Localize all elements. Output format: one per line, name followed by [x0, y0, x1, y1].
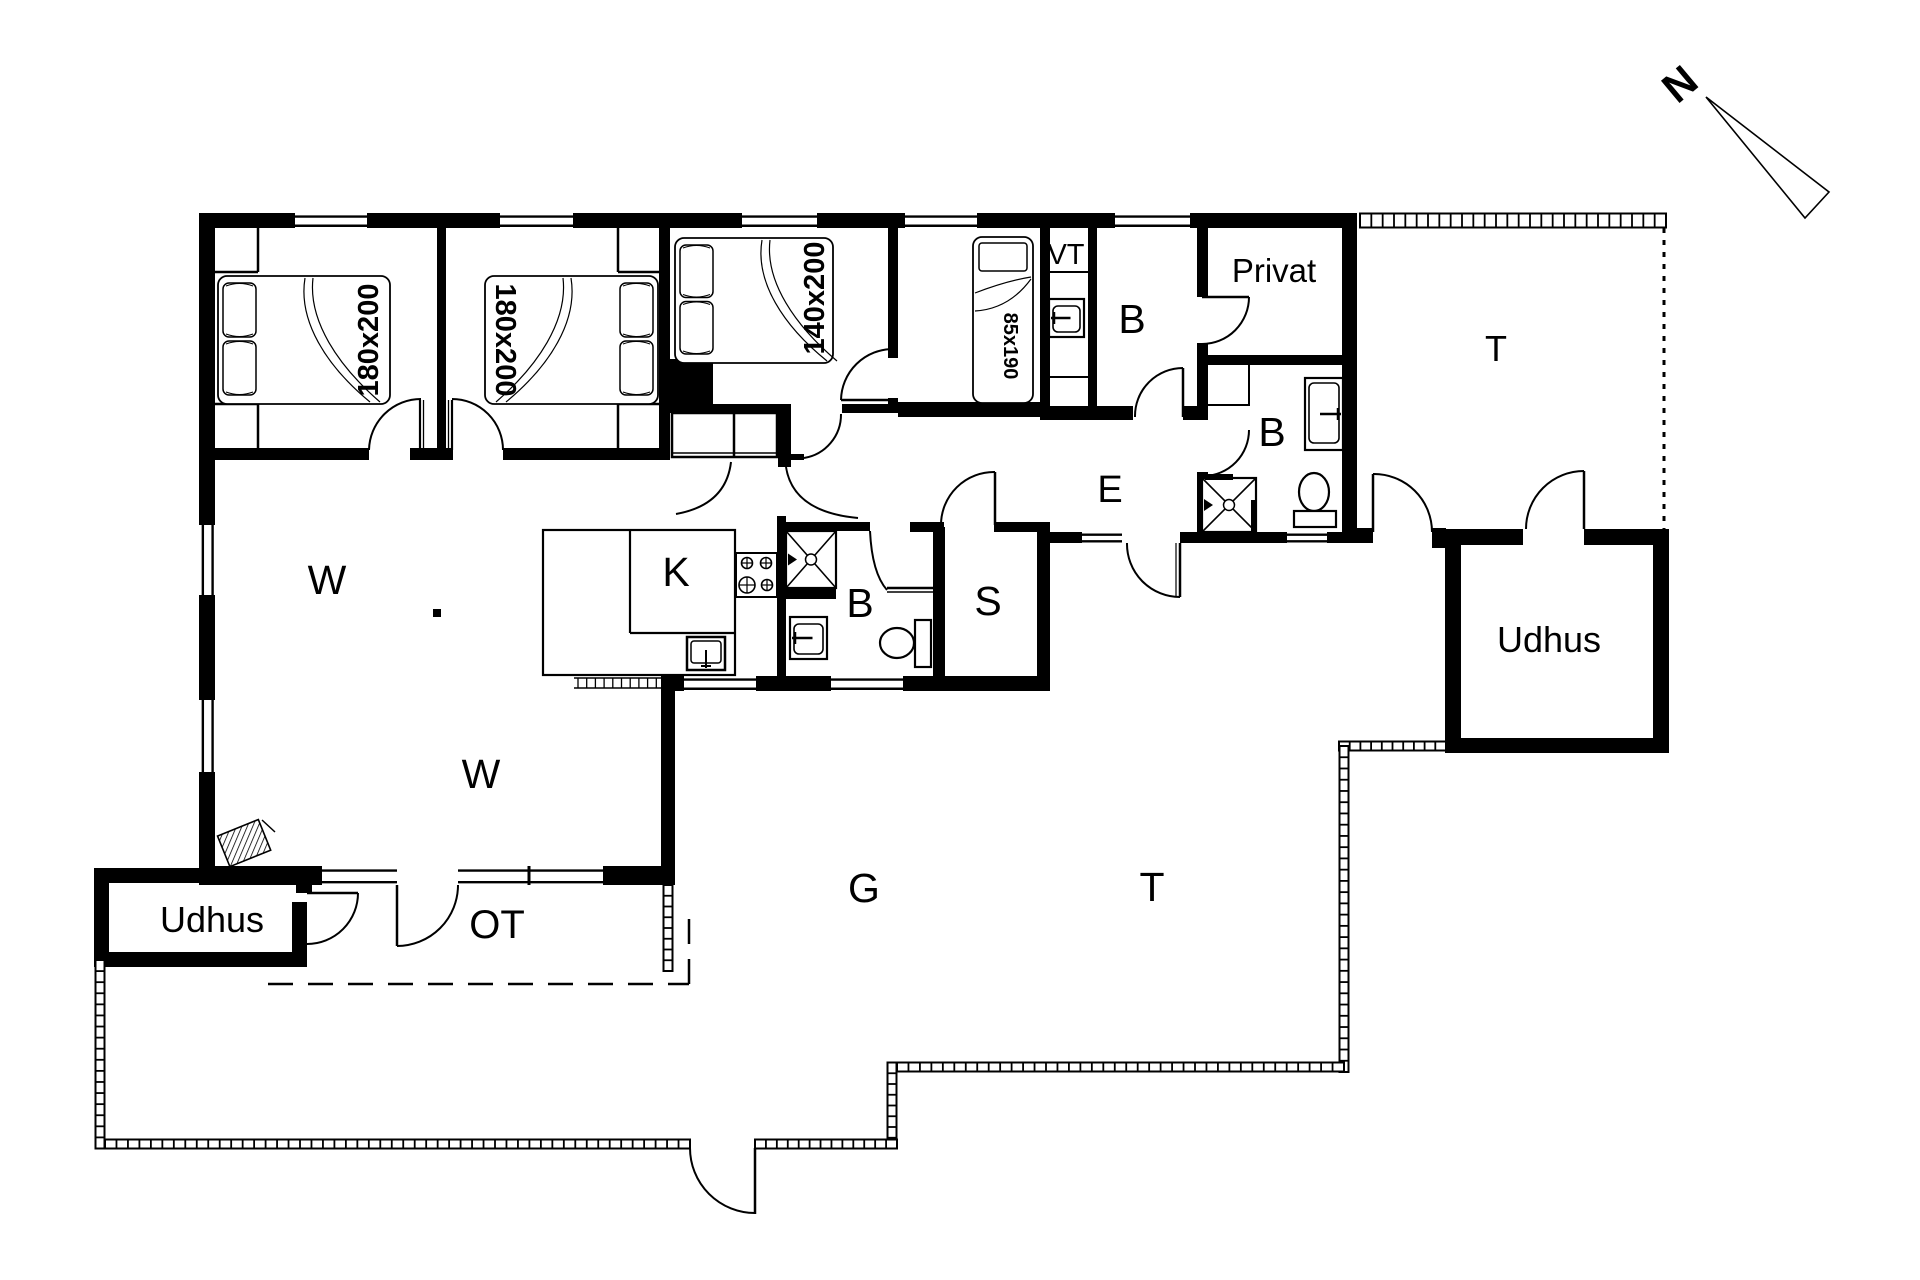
svg-text:W: W — [462, 751, 501, 797]
svg-text:B: B — [1118, 296, 1145, 342]
svg-text:S: S — [974, 578, 1001, 624]
svg-text:T: T — [1139, 864, 1164, 910]
svg-text:W: W — [308, 557, 347, 603]
svg-text:K: K — [662, 549, 689, 595]
svg-text:180x200: 180x200 — [489, 284, 521, 397]
svg-text:B: B — [1258, 409, 1285, 455]
svg-text:85x190: 85x190 — [999, 313, 1021, 380]
svg-text:180x200: 180x200 — [353, 284, 385, 397]
svg-text:VT: VT — [1047, 239, 1084, 271]
svg-text:G: G — [848, 865, 880, 911]
svg-text:E: E — [1097, 469, 1122, 511]
svg-text:T: T — [1485, 328, 1507, 369]
svg-text:Udhus: Udhus — [160, 899, 264, 940]
svg-text:Udhus: Udhus — [1497, 619, 1601, 660]
svg-text:Privat: Privat — [1232, 252, 1316, 289]
svg-text:B: B — [846, 580, 873, 626]
svg-text:OT: OT — [469, 903, 525, 947]
svg-text:140x200: 140x200 — [799, 242, 831, 355]
